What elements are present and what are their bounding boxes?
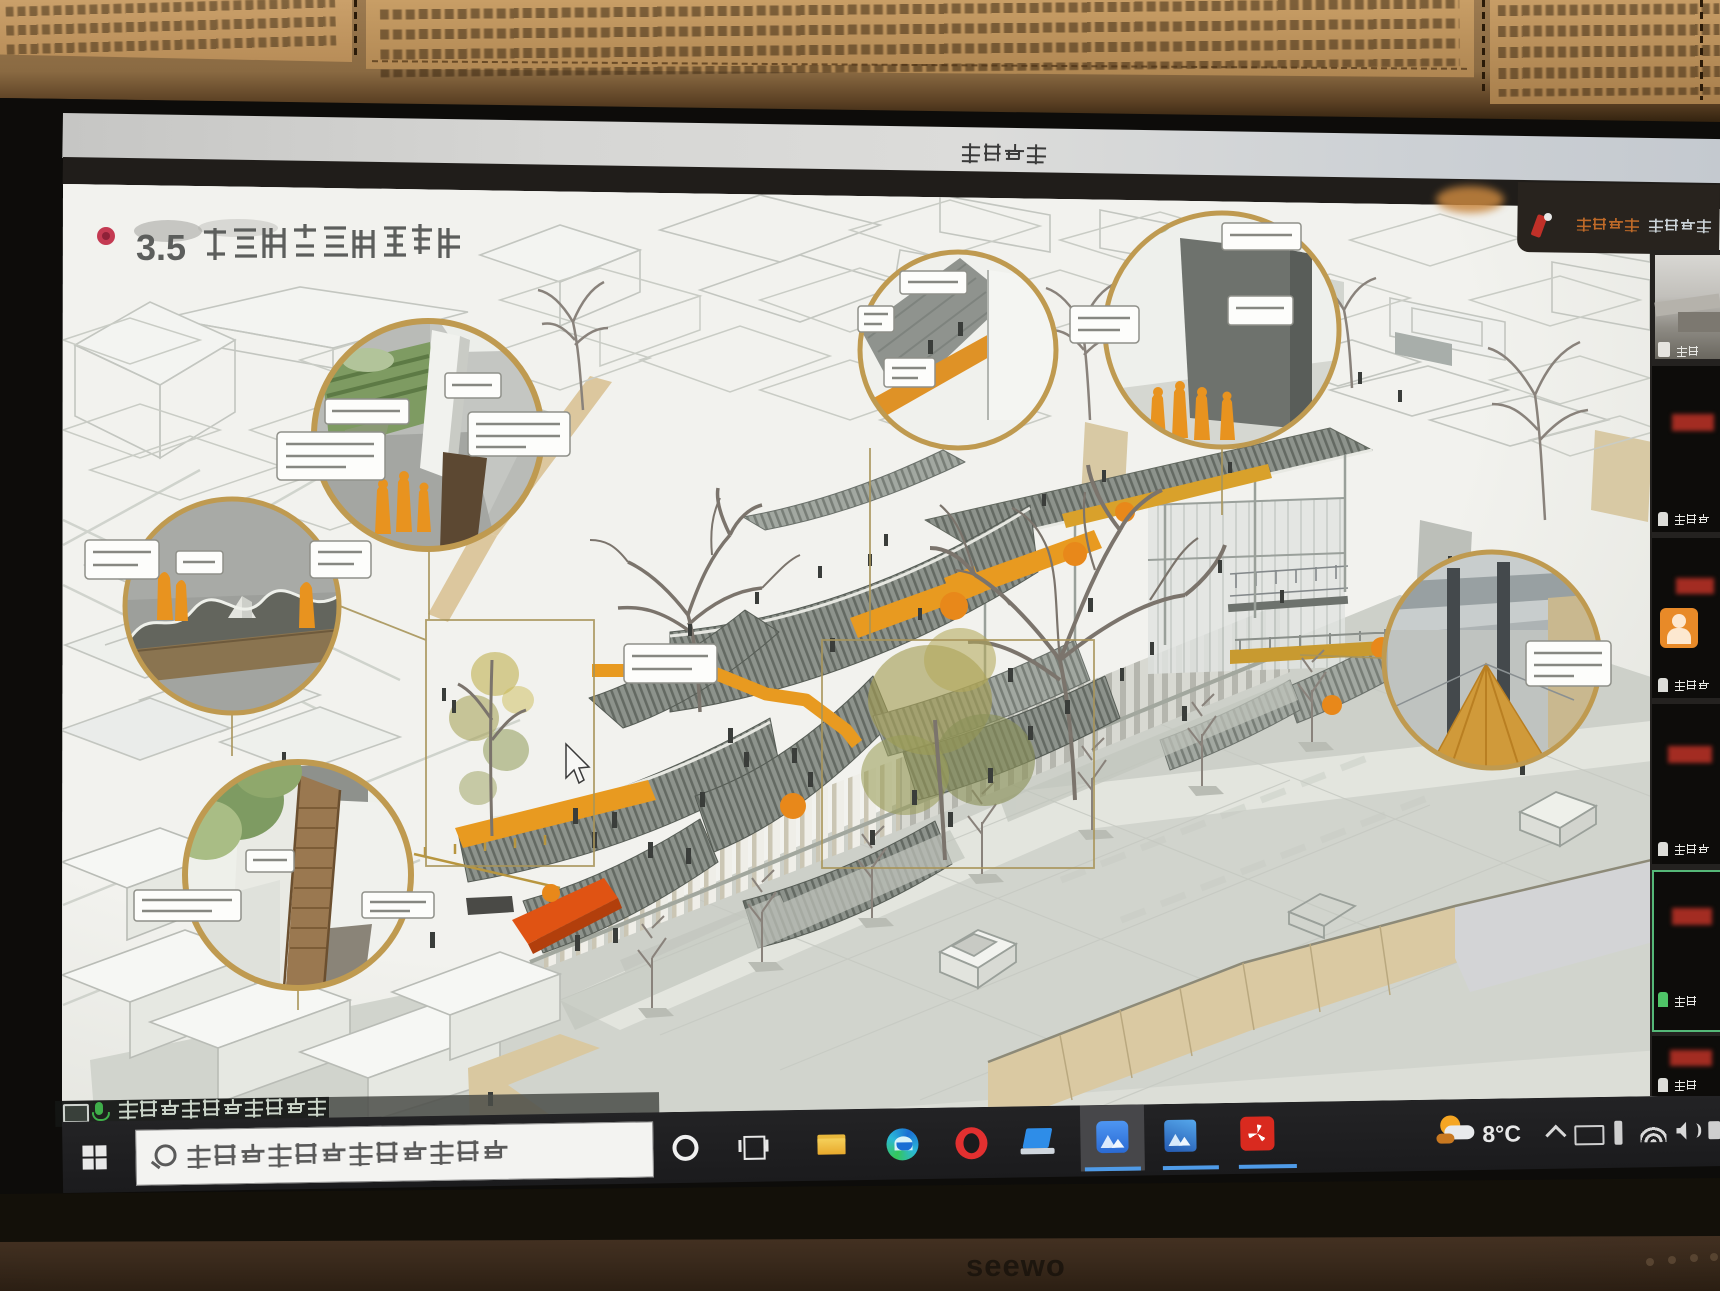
svg-text:3.5: 3.5 bbox=[136, 227, 186, 268]
